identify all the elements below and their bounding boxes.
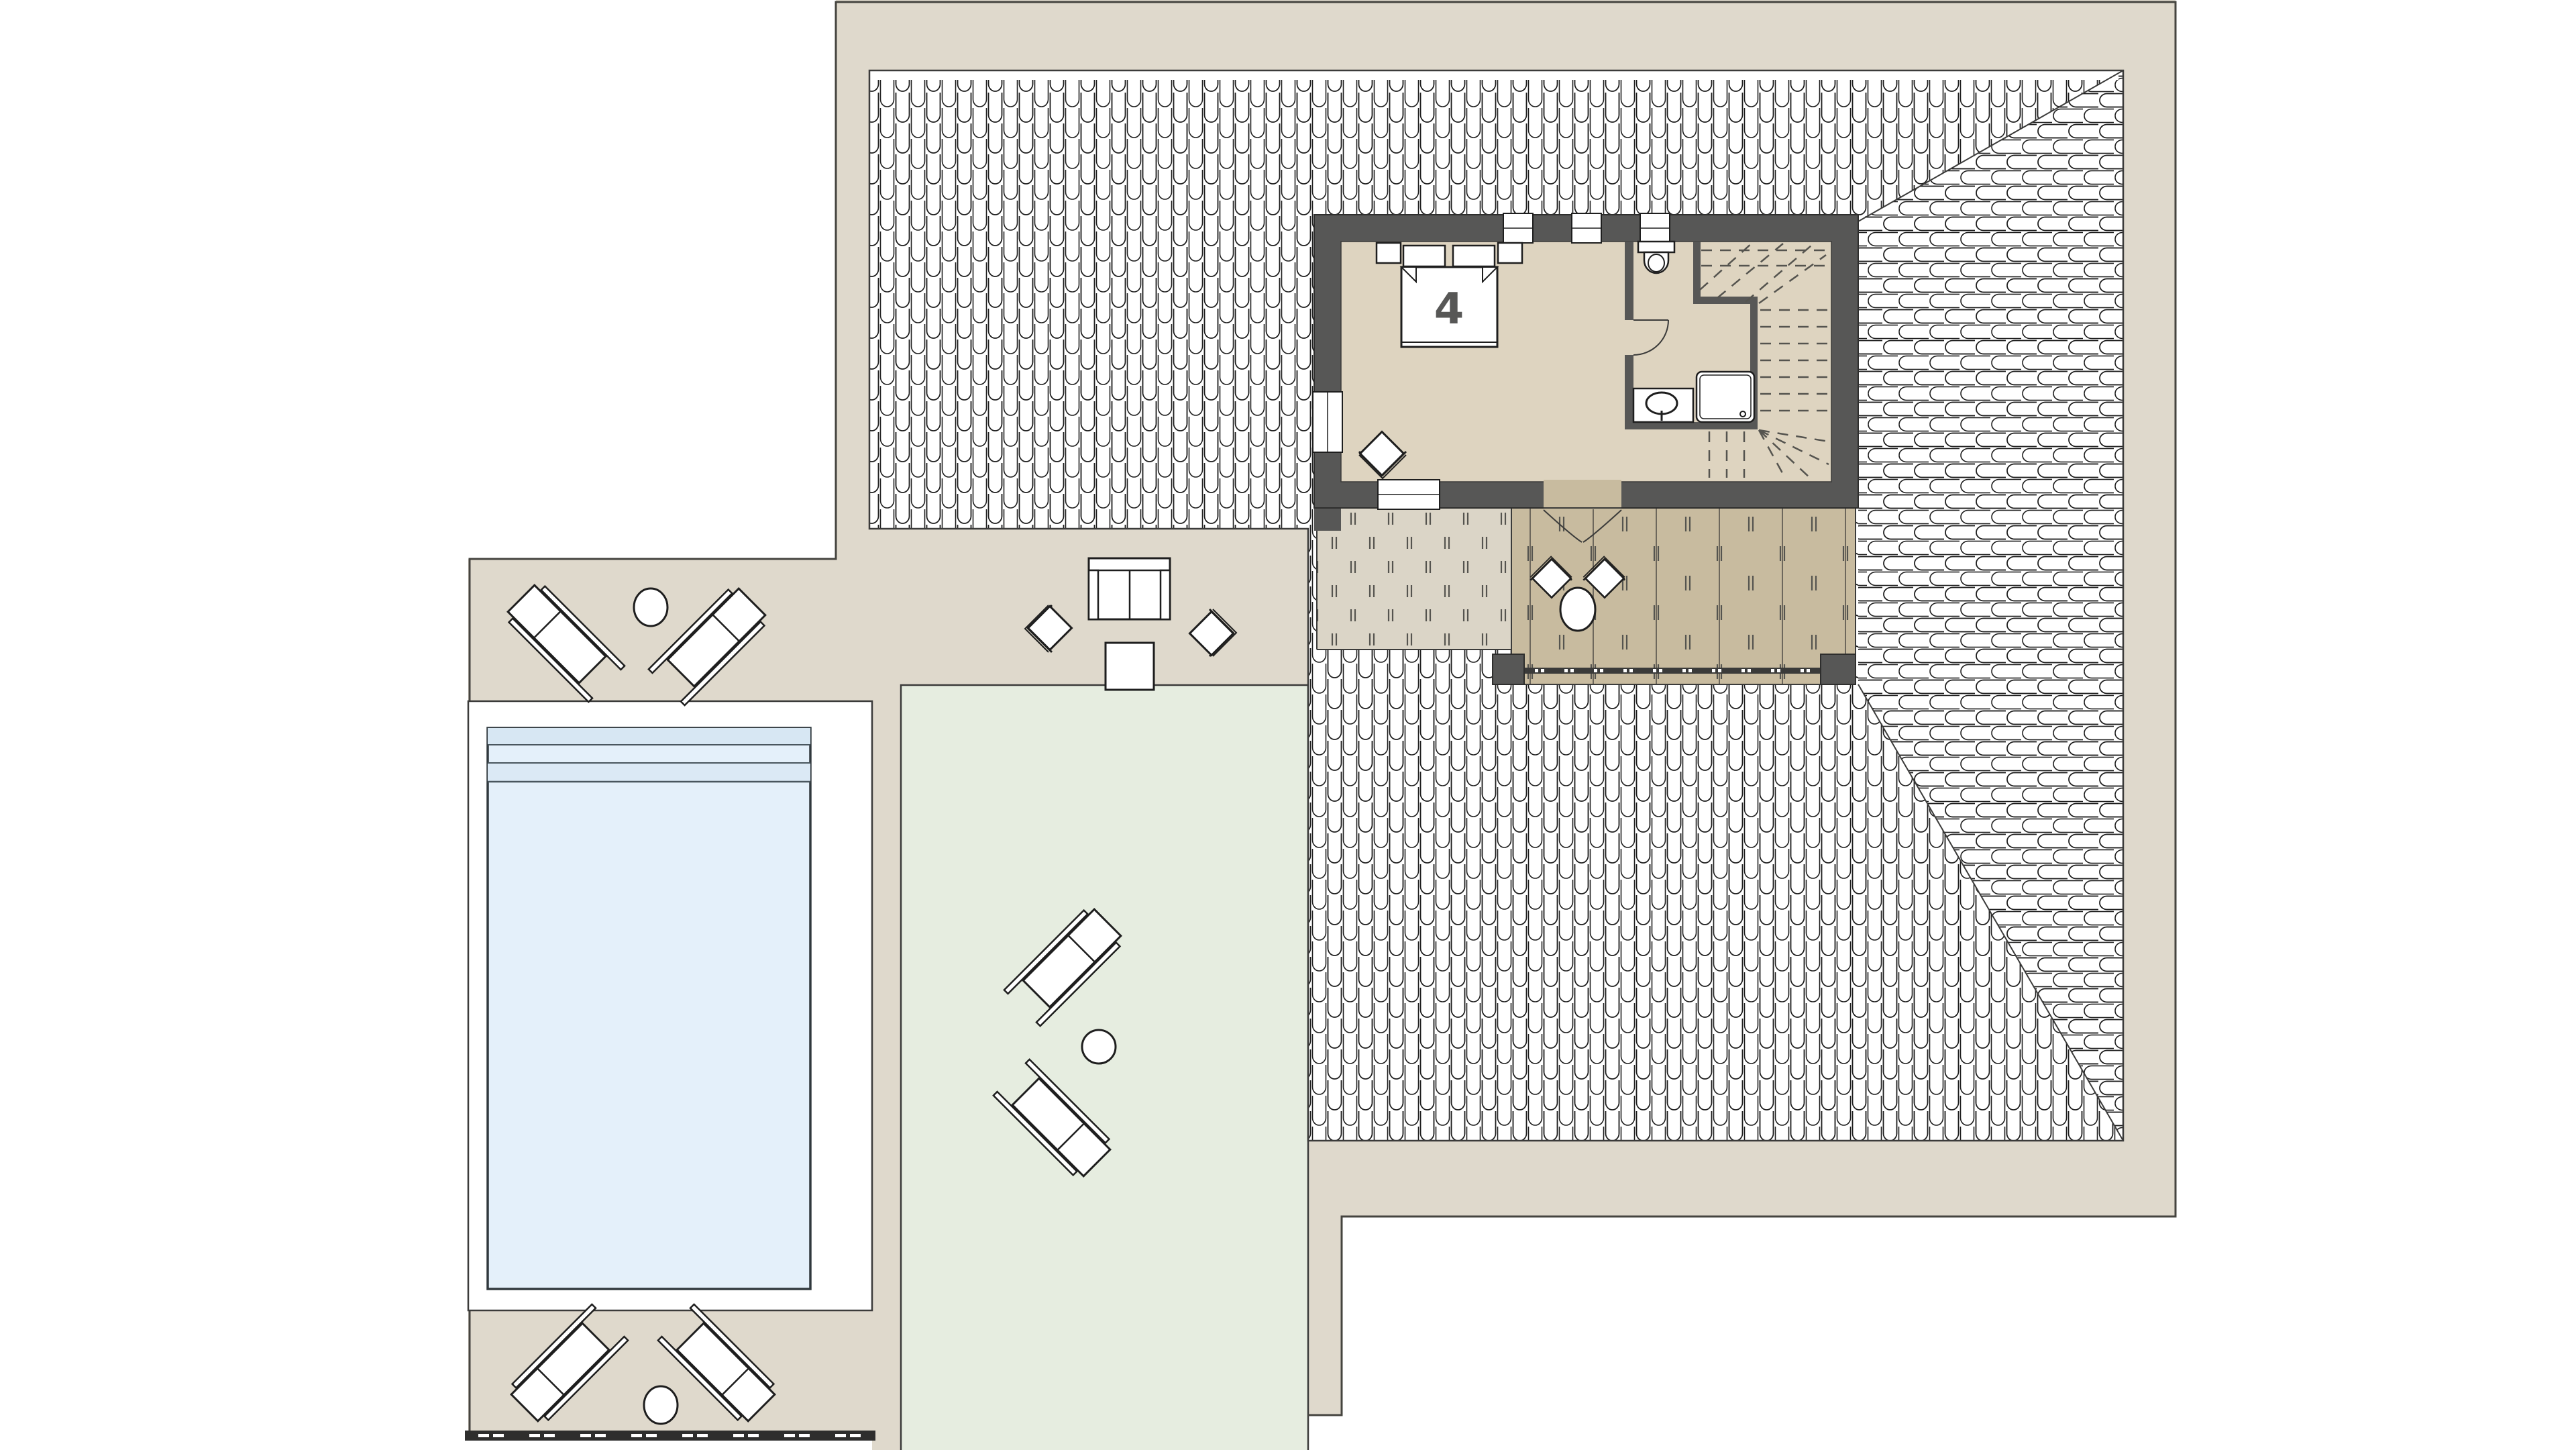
window [1378, 480, 1440, 509]
side-table [644, 1386, 678, 1424]
pillow [1403, 246, 1445, 266]
bathroom-sink [1633, 389, 1693, 422]
nightstand [1498, 243, 1522, 263]
nightstand [1377, 243, 1401, 263]
terrace-table [1560, 588, 1595, 631]
lawn [901, 685, 1308, 1450]
side-table [634, 588, 667, 626]
floor-plan-canvas: 4 [0, 0, 2576, 1450]
window [1572, 213, 1601, 243]
terrace [1493, 508, 1856, 684]
boundary-fence [465, 1431, 875, 1441]
window [1640, 213, 1670, 243]
terrace-railing [1524, 668, 1821, 674]
side-table [1082, 1030, 1116, 1064]
window [1503, 213, 1533, 243]
pillow [1453, 246, 1495, 266]
balcony [1314, 507, 1511, 650]
coffee-table [1106, 643, 1154, 690]
site-strip [872, 685, 901, 1450]
roof-eave-strip [871, 71, 2118, 80]
site-tab [1308, 1216, 1342, 1415]
building: 4 [1313, 213, 1858, 542]
window [1313, 392, 1342, 452]
wall-stub [1314, 507, 1341, 531]
shower [1697, 372, 1754, 422]
sofa [1089, 558, 1170, 619]
terrace-post [1493, 654, 1524, 684]
pool [488, 728, 810, 1289]
room-number-label: 4 [1434, 284, 1464, 334]
terrace-post [1821, 654, 1856, 684]
